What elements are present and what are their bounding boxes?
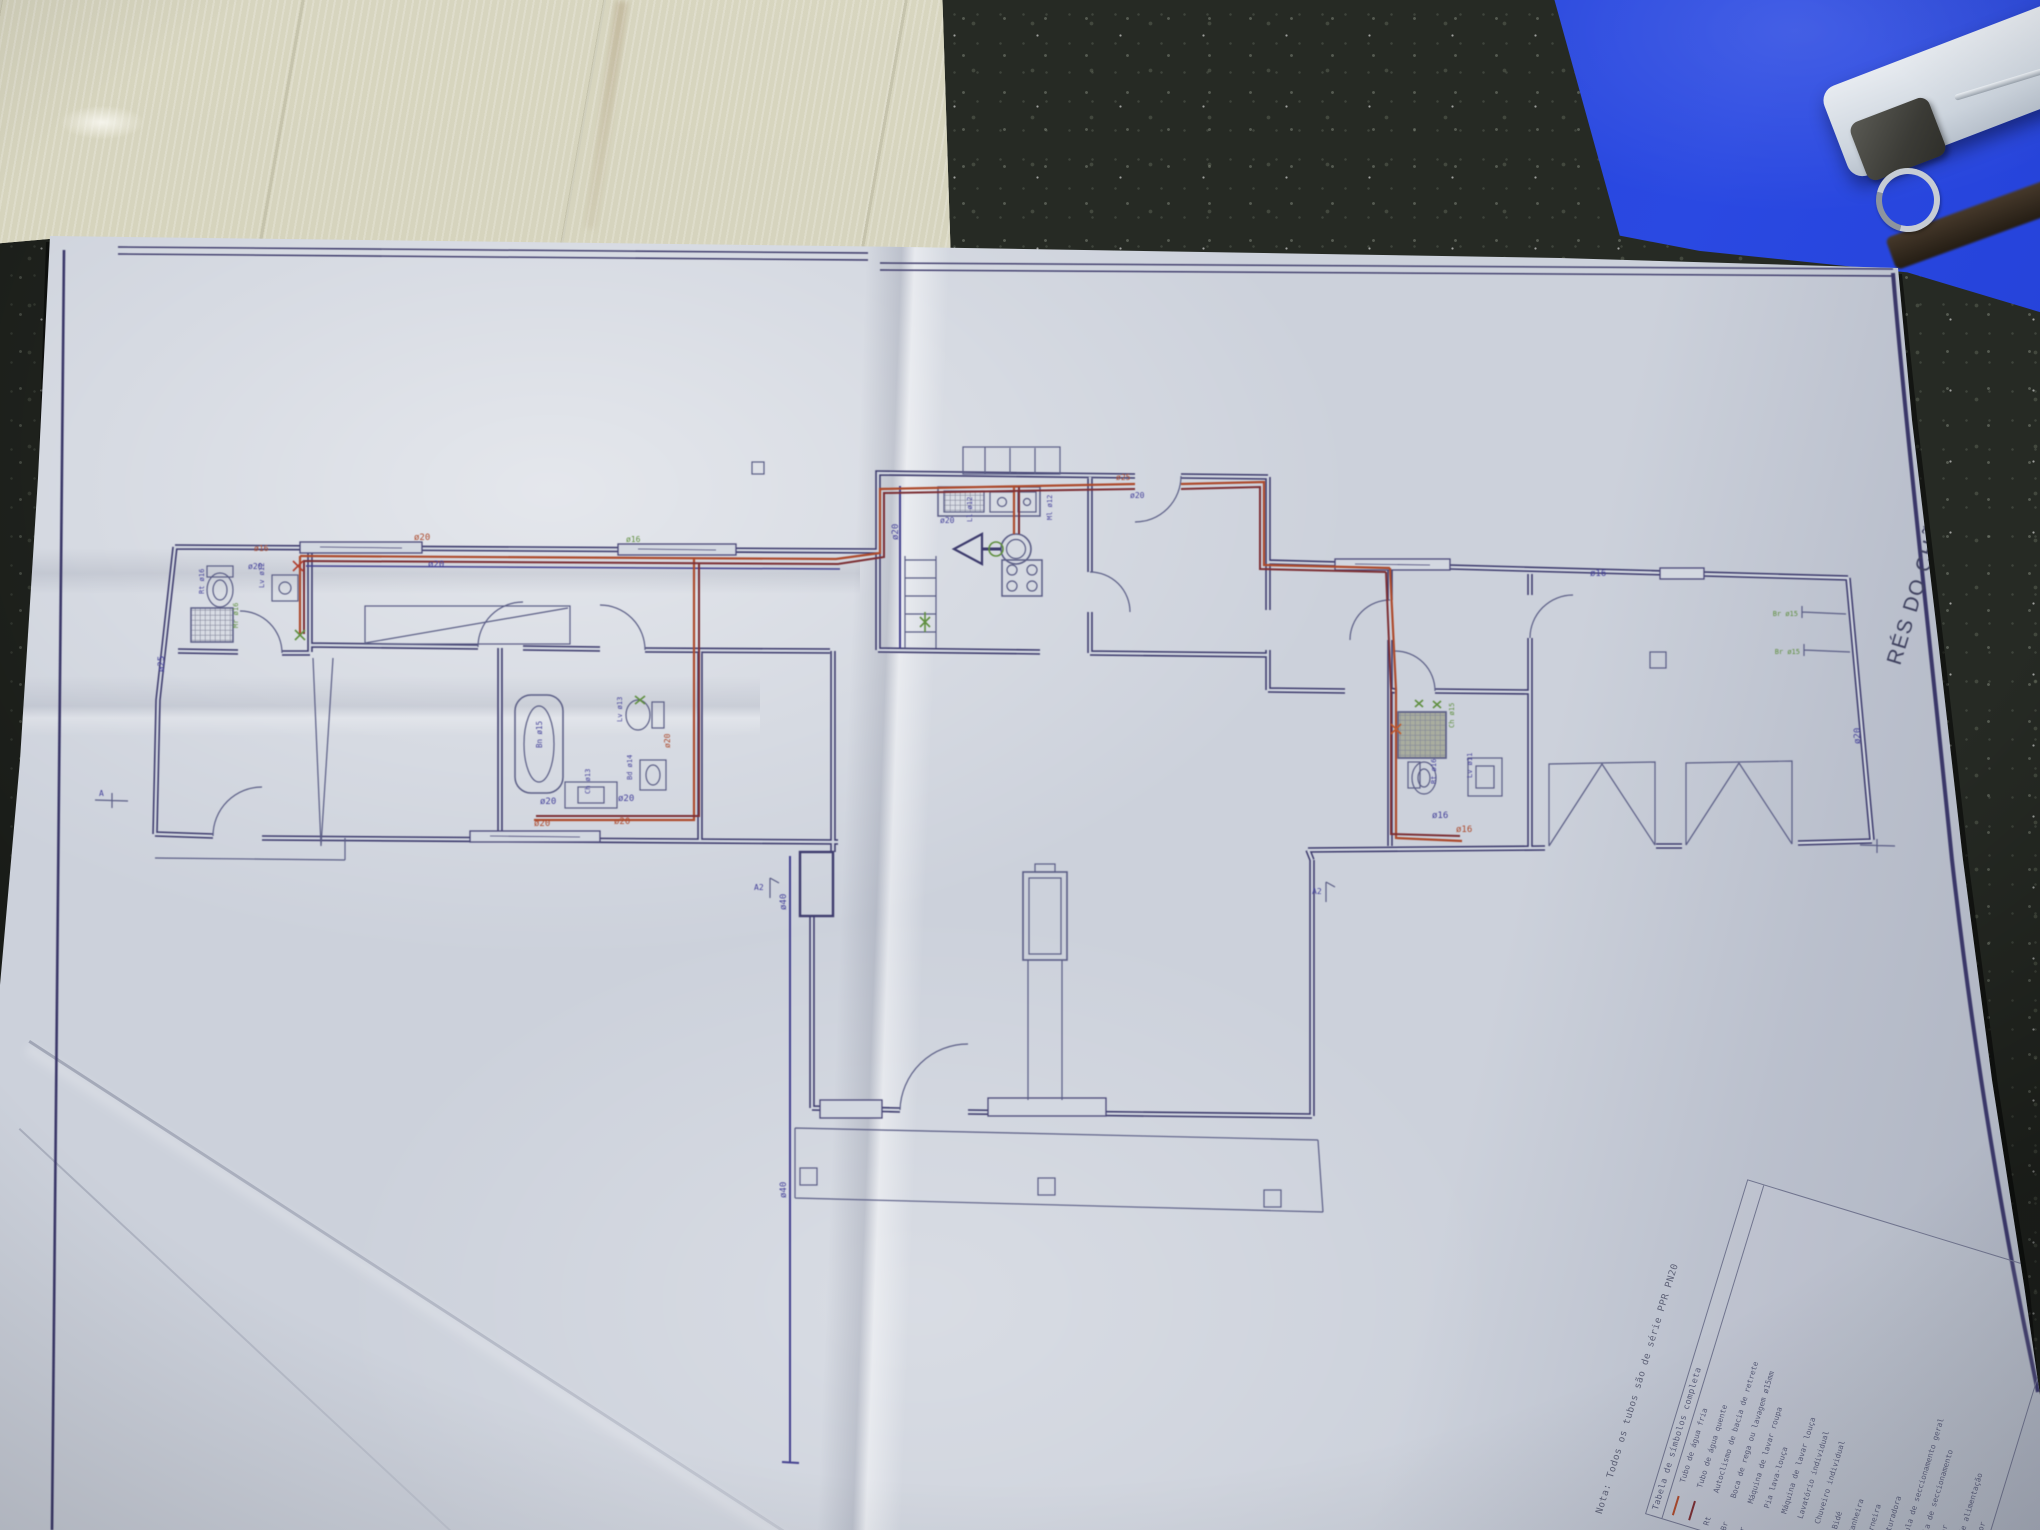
fixture-label: Lv ø12 <box>258 563 266 588</box>
fixture-label: Br ø15 <box>1773 610 1798 618</box>
fixture-label: Ll ø12 <box>966 497 974 522</box>
pipe-label: ø20 <box>428 560 444 570</box>
pipe-label: ø20 <box>414 533 430 543</box>
pipe-label: ø20 <box>1853 728 1863 744</box>
pipe-label: ø20 <box>663 733 672 748</box>
pipe-label: ø20 <box>1130 491 1145 500</box>
fixture-label: Ch ø13 <box>584 769 592 794</box>
pipe-label: ø25 <box>1116 473 1131 482</box>
pipe-label: ø20 <box>534 819 550 829</box>
pipe-label: ø20 <box>540 797 556 807</box>
fixture-labels: Rt ø16 Lv ø12 Mr ø16 Bn ø15 Lv ø13 Bd ø1… <box>99 495 1800 896</box>
fixture-label: Lv ø11 <box>1466 753 1474 778</box>
section-marker: A2 <box>754 883 764 892</box>
walls-outer <box>155 473 1872 1116</box>
section-marker: A2 <box>1312 887 1322 896</box>
fixture-label: Ch ø15 <box>1448 703 1456 728</box>
pipe-label: ø20 <box>940 516 955 525</box>
fixture-label: Bd ø14 <box>626 755 634 780</box>
photo-of-floor-plan: ø20 ø20 ø16 ø20 ø16 ø25 ø20 ø20 ø20 ø20 … <box>0 0 2040 1530</box>
pipe-label: ø16 <box>626 535 641 544</box>
fixture-label: Ml ø12 <box>1046 495 1054 520</box>
fixture-label: Mr ø16 <box>232 603 240 628</box>
pipe-label: ø16 <box>1432 811 1448 821</box>
legend-symbol <box>1672 1482 1684 1515</box>
pipe-label: ø16 <box>1456 825 1472 835</box>
section-marker: A <box>99 789 104 798</box>
pipe-label: ø20 <box>614 817 630 827</box>
fixture-label: Br ø15 <box>1775 648 1800 656</box>
fixture-label: Rt ø16 <box>198 569 206 594</box>
pipe-label: ø25 <box>157 656 167 672</box>
pipe-label: ø16 <box>254 544 269 553</box>
window-sills <box>300 542 1704 1118</box>
pipe-label: ø20 <box>891 524 901 540</box>
fixture-label: Bn ø15 <box>535 721 544 748</box>
legend-label: Bidé <box>1830 1510 1844 1530</box>
pipe-label: ø40 <box>779 1182 789 1198</box>
pipe-label: ø20 <box>618 794 634 804</box>
pipe-label: ø16 <box>1590 569 1606 579</box>
pillar <box>800 852 833 916</box>
pipe-label: ø40 <box>779 894 789 910</box>
hot-water-pipe <box>303 487 1460 836</box>
fixture-label: Lv ø13 <box>616 697 624 722</box>
cold-water-pipe <box>300 482 1462 841</box>
legend-symbol <box>1689 1487 1701 1520</box>
fixture-label: Rt ø16 <box>1430 759 1438 784</box>
